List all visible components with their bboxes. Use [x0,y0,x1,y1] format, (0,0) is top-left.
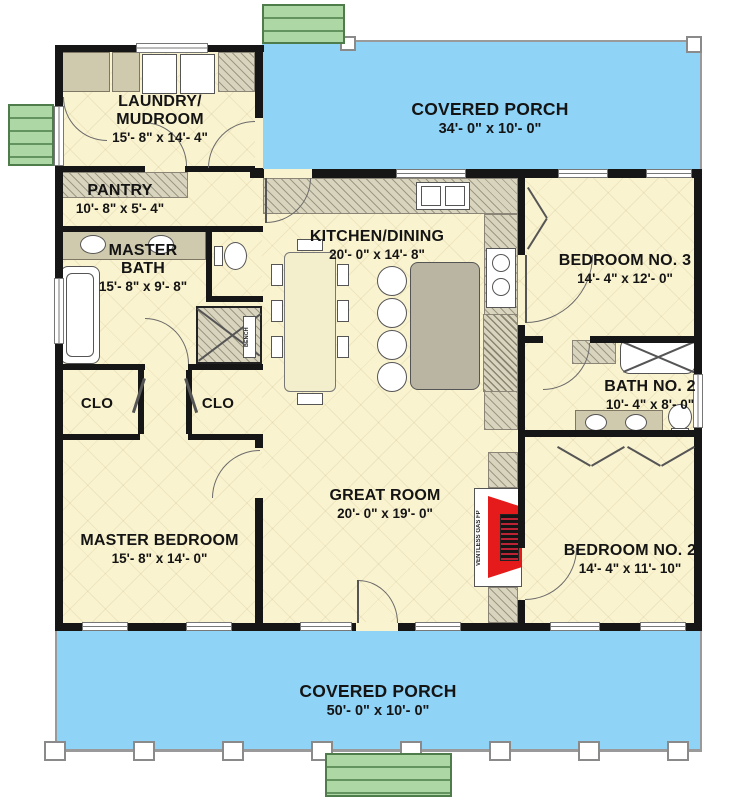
dining-table [284,252,336,392]
room-label-kitchen: KITCHEN/DINING 20'- 0" x 14'- 8" [292,228,462,262]
stoop-left [8,104,54,166]
dining-chair [271,300,283,322]
door-leaf [265,178,267,223]
wall-center [518,600,525,623]
room-name: PANTRY [40,182,200,200]
floor-plan: BENCH ST OVEN/ HOOD REF. VENTLESS GAS FP [0,0,732,799]
room-dims: 15'- 8" x 14'- 4" [70,130,250,145]
door-opening [356,622,398,631]
room-name: CLO [188,396,248,413]
room-label-clo-right: CLO [188,396,248,413]
dining-chair [337,336,349,358]
dining-chair [271,264,283,286]
door-leaf [525,255,527,323]
refrigerator [483,314,518,392]
wall-bath-clo [188,364,263,370]
wall-bath2-bed2 [518,430,694,437]
kitchen-island [410,262,480,390]
stoop-top [262,4,345,44]
dryer [180,54,215,94]
stove-burner [492,254,510,272]
washer [142,54,177,94]
room-name: KITCHEN/DINING [292,228,462,246]
bar-stool [377,266,407,296]
dining-chair [337,264,349,286]
room-dims: 15'- 8" x 9'- 8" [73,279,213,294]
room-dims: 34'- 0" x 10'- 0" [330,121,650,137]
bar-stool [377,362,407,392]
room-label-great-room: GREAT ROOM 20'- 0" x 19'- 0" [300,487,470,521]
wall-toilet-room [206,296,263,302]
room-label-clo-left: CLO [67,396,127,413]
room-label-pantry: PANTRY 10'- 8" x 5'- 4" [40,182,200,216]
bar-stool [377,330,407,360]
room-label-top-porch: COVERED PORCH 34'- 0" x 10'- 0" [330,100,650,137]
room-dims: 20'- 0" x 19'- 0" [300,506,470,521]
bath2-sink [625,414,647,431]
window [640,622,686,631]
bar-stool [377,298,407,328]
fireplace-chase [488,452,518,488]
door-opening [255,118,263,168]
wall-mb-great [255,498,263,623]
room-dims: 15'- 8" x 14'- 0" [67,551,252,566]
master-toilet-tank [214,246,223,266]
dining-chair [297,393,323,405]
wall-mb-great [255,434,263,448]
room-name: BEDROOM NO. 3 [545,252,705,270]
room-dims: 50'- 0" x 10'- 0" [228,703,528,719]
room-label-bedroom3: BEDROOM NO. 3 14'- 4" x 12'- 0" [545,252,705,286]
wall-exterior-top [250,169,702,178]
room-label-master-bath: MASTER BATH 15'- 8" x 9'- 8" [73,242,213,294]
fireplace-label: VENTLESS GAS FP [476,497,488,579]
dining-chair [337,300,349,322]
room-name: LAUNDRY/ MUDROOM [70,93,250,129]
window [558,169,608,178]
room-label-bedroom2: BEDROOM NO. 2 14'- 4" x 11'- 10" [540,542,720,576]
kitchen-sink-basin [421,186,441,206]
room-name: BEDROOM NO. 2 [540,542,720,560]
window [646,169,692,178]
window [54,106,64,166]
window [396,169,466,178]
laundry-cabinet [112,52,140,92]
porch-column [686,36,702,53]
porch-column [578,741,600,761]
shower-bench-label: BENCH [244,318,255,356]
top-porch-edge-right [700,40,702,172]
room-name: GREAT ROOM [300,487,470,505]
room-name: COVERED PORCH [330,100,650,120]
room-label-bath2: BATH NO. 2 10'- 4" x 8'- 0" [570,378,730,412]
window [186,622,232,631]
window [136,43,208,53]
wall-pantry-top [55,166,145,172]
fireplace-chase [488,587,518,623]
room-dims: 10'- 8" x 5'- 4" [40,201,200,216]
room-dims: 20'- 0" x 14'- 8" [292,247,462,262]
dining-chair [271,336,283,358]
window [300,622,352,631]
bath2-sink [585,414,607,431]
wall-bed3-bath2 [590,336,694,343]
room-name: CLO [67,396,127,413]
kitchen-sink-basin [445,186,465,206]
room-name: MASTER BEDROOM [67,532,252,550]
room-label-master-bedroom: MASTER BEDROOM 15'- 8" x 14'- 0" [67,532,252,566]
porch-column [667,741,689,761]
wall-clo-bottom [188,434,263,440]
wall-center [518,178,525,255]
porch-column [44,741,66,761]
room-dims: 14'- 4" x 12'- 0" [545,271,705,286]
fireplace-logs [500,514,519,561]
window [550,622,600,631]
stoop-bottom [325,753,452,797]
window [82,622,128,631]
window [415,622,461,631]
room-label-laundry: LAUNDRY/ MUDROOM 15'- 8" x 14'- 4" [70,93,250,145]
master-toilet [224,242,247,270]
room-dims: 14'- 4" x 11'- 10" [540,561,720,576]
wall-bed3-bath2 [518,336,543,343]
stove-burner [492,278,510,296]
bottom-porch-edge-right [700,630,702,752]
room-dims: 10'- 4" x 8'- 0" [570,397,730,412]
bottom-porch-edge-left [55,630,57,752]
porch-column [222,741,244,761]
door-opening [264,169,312,178]
porch-column [489,741,511,761]
wall-bath-clo [55,364,145,370]
window [54,278,64,344]
room-name: MASTER BATH [73,242,213,278]
wall-clo-bottom [55,434,140,440]
door-leaf [357,580,359,623]
room-name: COVERED PORCH [228,682,528,702]
porch-column [133,741,155,761]
room-name: BATH NO. 2 [570,378,730,396]
laundry-counter [62,52,110,92]
room-label-bottom-porch: COVERED PORCH 50'- 0" x 10'- 0" [228,682,528,719]
laundry-counter-right [218,52,255,92]
wall-pantry-bottom [55,226,263,232]
